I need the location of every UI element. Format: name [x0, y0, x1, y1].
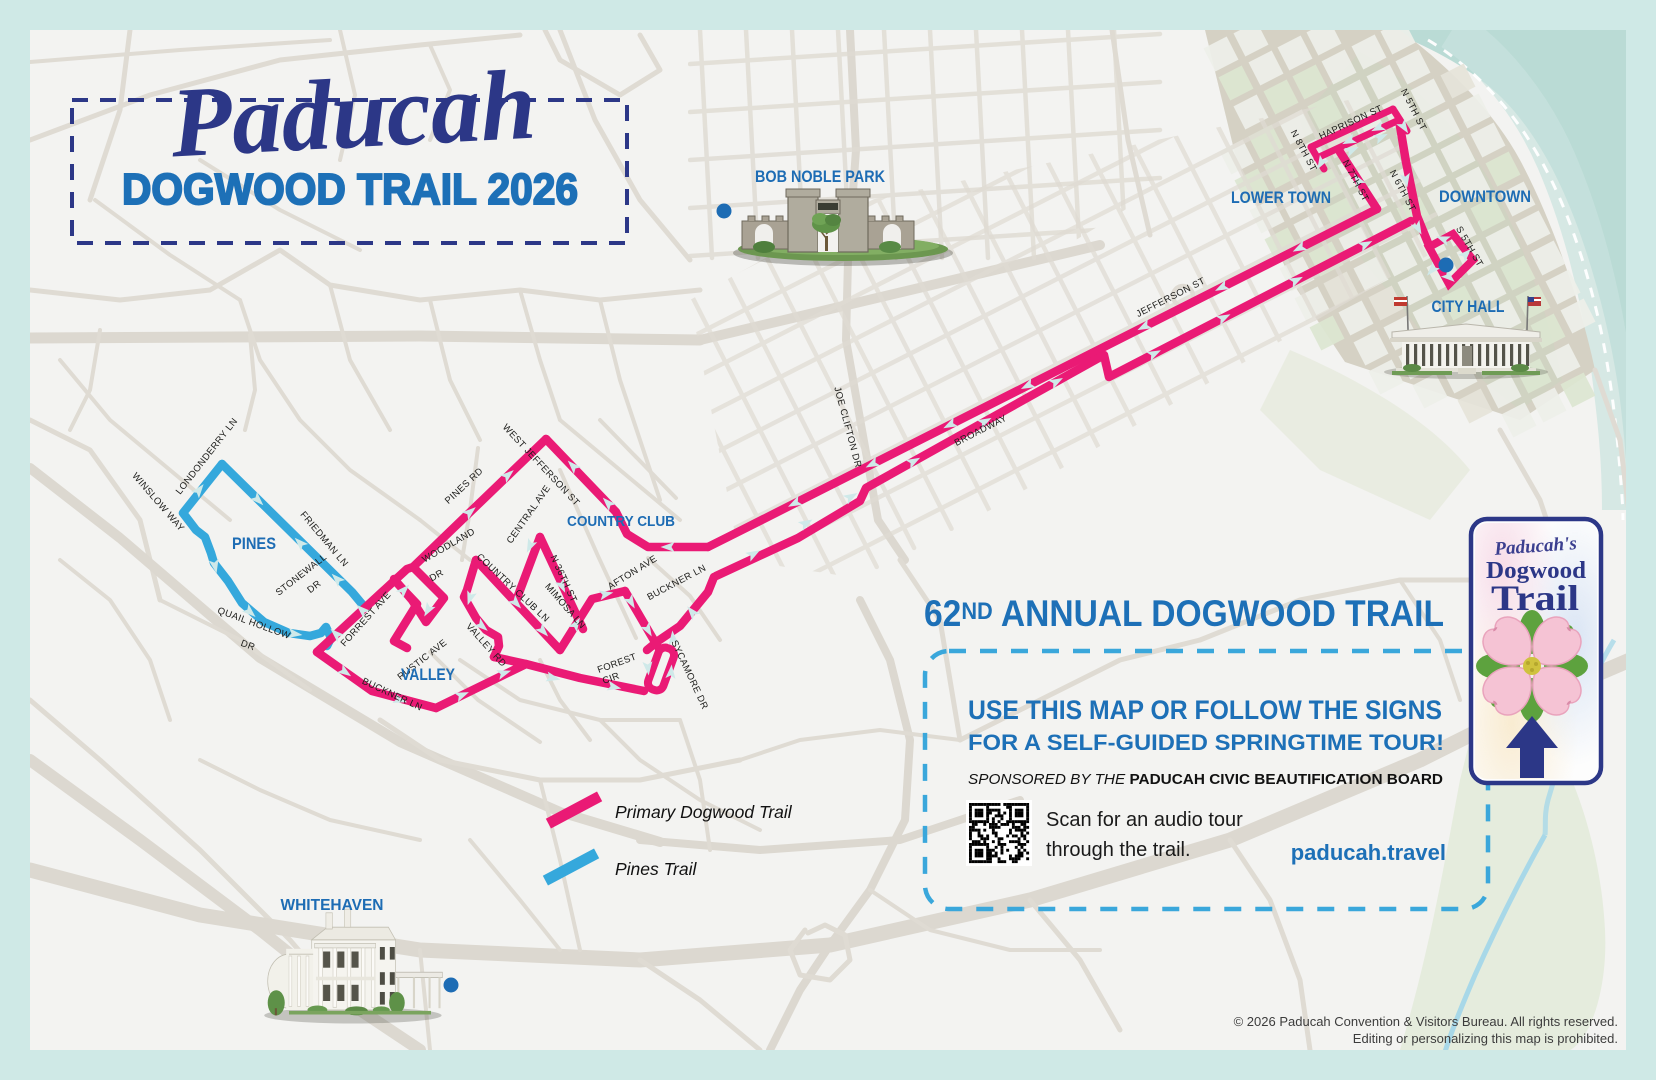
- svg-text:LOWER TOWN: LOWER TOWN: [1231, 188, 1331, 207]
- svg-text:62ND ANNUAL DOGWOOD TRAIL: 62ND ANNUAL DOGWOOD TRAIL: [924, 593, 1444, 634]
- svg-text:CITY HALL: CITY HALL: [1432, 297, 1505, 316]
- svg-text:WHITEHAVEN: WHITEHAVEN: [281, 897, 384, 914]
- svg-text:DOGWOOD TRAIL 2026: DOGWOOD TRAIL 2026: [122, 165, 578, 214]
- svg-text:COUNTRY CLUB: COUNTRY CLUB: [567, 514, 675, 530]
- svg-text:through the trail.: through the trail.: [1046, 839, 1191, 861]
- svg-text:Editing or personalizing this: Editing or personalizing this map is pro…: [1353, 1031, 1618, 1046]
- svg-text:USE THIS MAP OR FOLLOW THE SIG: USE THIS MAP OR FOLLOW THE SIGNS: [968, 695, 1442, 725]
- svg-text:Pines Trail: Pines Trail: [615, 859, 697, 879]
- svg-text:Paducah: Paducah: [167, 49, 538, 179]
- svg-text:© 2026 Paducah Convention & Vi: © 2026 Paducah Convention & Visitors Bur…: [1234, 1014, 1618, 1029]
- svg-text:BOB NOBLE PARK: BOB NOBLE PARK: [755, 167, 886, 186]
- svg-text:DOWNTOWN: DOWNTOWN: [1439, 187, 1531, 206]
- svg-text:Scan for an audio tour: Scan for an audio tour: [1046, 809, 1243, 831]
- svg-text:paducah.travel: paducah.travel: [1291, 840, 1446, 865]
- svg-text:PINES: PINES: [232, 534, 276, 553]
- svg-text:SPONSORED BY THE PADUCAH CIVIC: SPONSORED BY THE PADUCAH CIVIC BEAUTIFIC…: [968, 772, 1443, 788]
- svg-text:VALLEY: VALLEY: [401, 665, 456, 684]
- svg-text:FOR A SELF-GUIDED SPRINGTIME T: FOR A SELF-GUIDED SPRINGTIME TOUR!: [968, 730, 1444, 755]
- svg-text:Primary Dogwood Trail: Primary Dogwood Trail: [615, 802, 793, 822]
